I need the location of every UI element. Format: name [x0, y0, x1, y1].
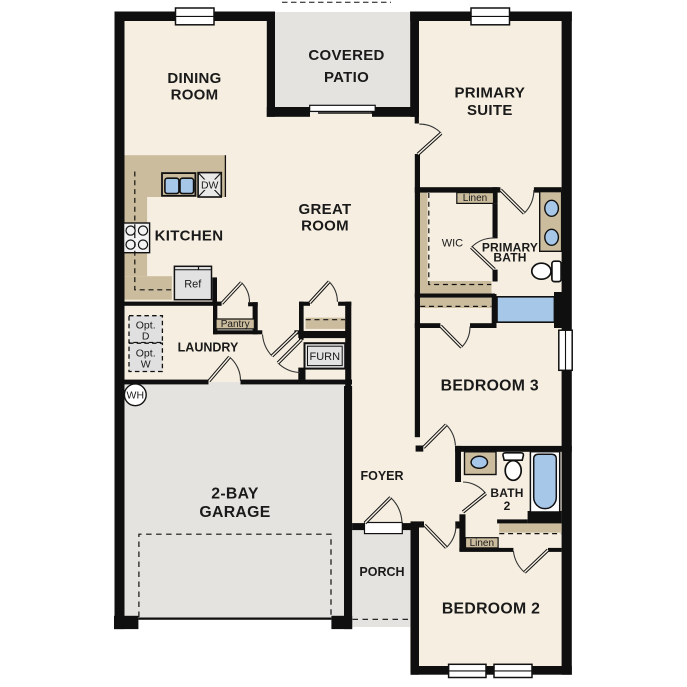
svg-text:DINING: DINING: [167, 70, 221, 87]
svg-text:Linen: Linen: [470, 538, 494, 549]
svg-text:KITCHEN: KITCHEN: [155, 228, 224, 245]
svg-text:LAUNDRY: LAUNDRY: [178, 341, 239, 355]
svg-text:GARAGE: GARAGE: [199, 504, 270, 521]
svg-text:FOYER: FOYER: [360, 469, 403, 483]
svg-text:BATH: BATH: [493, 251, 526, 265]
svg-text:Ref: Ref: [184, 278, 202, 290]
svg-text:Pantry: Pantry: [221, 319, 250, 330]
svg-text:D: D: [142, 331, 150, 343]
svg-text:2: 2: [504, 499, 511, 513]
svg-text:PORCH: PORCH: [359, 565, 404, 579]
svg-text:COVERED: COVERED: [308, 47, 384, 64]
svg-text:SUITE: SUITE: [467, 102, 513, 119]
svg-text:GREAT: GREAT: [299, 201, 352, 218]
svg-text:Linen: Linen: [463, 193, 487, 204]
svg-text:ROOM: ROOM: [301, 217, 349, 234]
svg-text:BEDROOM 2: BEDROOM 2: [442, 601, 540, 618]
svg-text:W: W: [141, 358, 151, 370]
svg-text:BATH: BATH: [490, 486, 523, 500]
svg-text:FURN: FURN: [310, 351, 341, 363]
svg-text:WH: WH: [127, 390, 145, 402]
svg-text:PRIMARY: PRIMARY: [454, 85, 525, 102]
svg-text:PATIO: PATIO: [324, 69, 369, 86]
svg-text:WIC: WIC: [442, 238, 463, 250]
svg-text:ROOM: ROOM: [171, 86, 219, 103]
svg-text:2-BAY: 2-BAY: [211, 485, 259, 502]
svg-text:BEDROOM 3: BEDROOM 3: [441, 378, 539, 395]
svg-text:DW: DW: [201, 179, 219, 191]
